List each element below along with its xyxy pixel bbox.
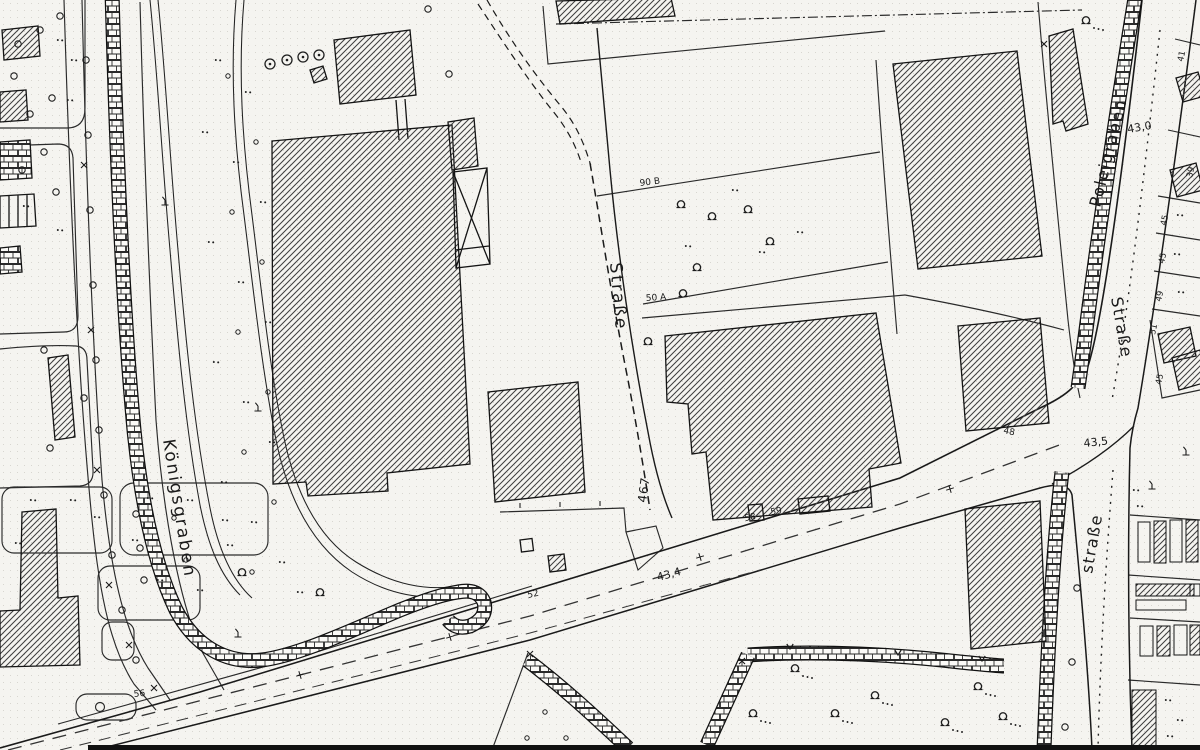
building-tl-3 xyxy=(0,140,32,180)
building-top-strip xyxy=(556,0,675,24)
cadastral-map: Königsgraben Straße 467 Poleigraben Stra… xyxy=(0,0,1200,750)
label-street-number-467: 467 xyxy=(635,476,652,504)
hut-1 xyxy=(548,554,566,572)
map-neatline xyxy=(88,745,1200,750)
label-elev-43-0: 43,0 xyxy=(1126,119,1152,136)
label-parcel-59: 59 xyxy=(770,506,783,518)
label-strasse-right-lower: straße xyxy=(1077,512,1106,574)
building-tl-2 xyxy=(0,90,28,122)
label-house-45c: 45 xyxy=(1154,373,1166,386)
label-strasse-center: Straße xyxy=(605,262,631,332)
label-parcel-56: 56 xyxy=(133,689,146,700)
building-l-shape xyxy=(0,509,80,667)
building-center-right xyxy=(665,313,901,520)
building-poleigraben-thin xyxy=(1049,29,1088,131)
building-re-1 xyxy=(1176,72,1200,102)
label-house-45b: 45 xyxy=(1157,252,1169,265)
building-bottom-right xyxy=(965,501,1046,649)
hut-2 xyxy=(520,539,534,553)
building-narrow-left xyxy=(48,355,75,440)
building-tl-4 xyxy=(0,194,36,228)
building-strip xyxy=(448,118,478,170)
label-elev-43-4: 43,4 xyxy=(655,565,682,584)
building-small-top xyxy=(334,30,416,104)
label-strasse-right-upper: Straße xyxy=(1107,295,1136,359)
allotment-huts xyxy=(1132,520,1200,748)
label-parcel-50a: 50 A xyxy=(646,293,668,304)
building-mid xyxy=(488,382,585,502)
label-house-49: 49 xyxy=(1154,290,1166,303)
label-parcel-58: 58 xyxy=(744,512,757,524)
label-elev-43-5: 43,5 xyxy=(1083,434,1109,449)
building-top-right xyxy=(893,51,1042,269)
map-canvas: Königsgraben Straße 467 Poleigraben Stra… xyxy=(0,0,1200,750)
building-tl-5 xyxy=(0,246,22,274)
hut-3 xyxy=(310,66,327,83)
building-48 xyxy=(958,318,1049,431)
buildings xyxy=(0,0,1200,748)
building-factory-hall xyxy=(272,125,470,496)
label-parcel-52: 52 xyxy=(527,589,540,601)
label-house-41: 41 xyxy=(1176,50,1188,63)
label-house-45a: 45 xyxy=(1159,214,1171,227)
label-parcel-48: 48 xyxy=(1002,426,1016,438)
